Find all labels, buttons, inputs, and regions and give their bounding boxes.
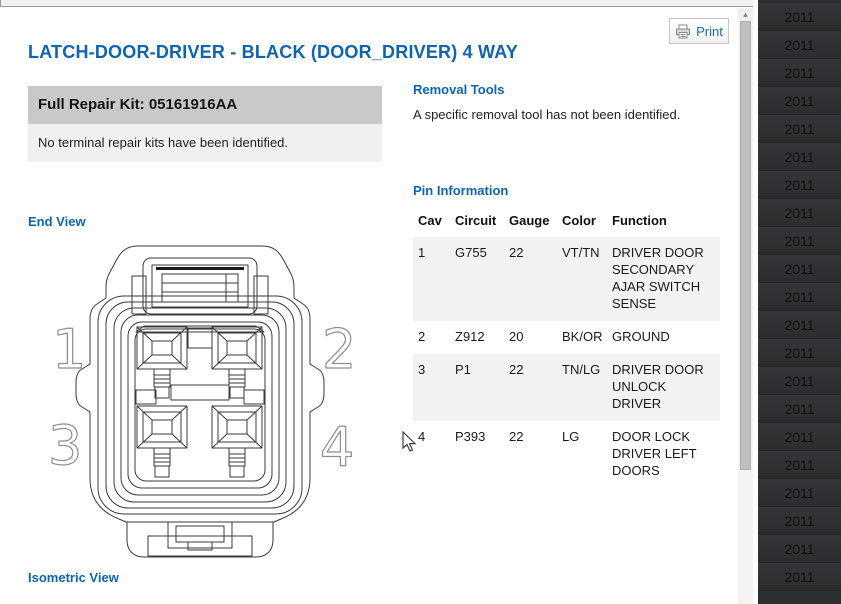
pin-table-header-row: Cav Circuit Gauge Color Function bbox=[413, 207, 720, 237]
cavity-label-3: 3 bbox=[48, 414, 82, 477]
cell-cav: 2 bbox=[413, 321, 450, 354]
table-row: 3 P1 22 TN/LG DRIVER DOOR UNLOCK DRIVER bbox=[413, 354, 720, 421]
scrollbar-thumb[interactable] bbox=[740, 21, 751, 470]
year-item[interactable]: 2011 bbox=[758, 59, 841, 87]
cell-color: TN/LG bbox=[557, 354, 607, 421]
removal-tools-note: A specific removal tool has not been ide… bbox=[413, 107, 680, 122]
cell-color: BK/OR bbox=[557, 321, 607, 354]
year-item[interactable]: 2011 bbox=[758, 563, 841, 591]
cell-gauge: 22 bbox=[504, 421, 557, 488]
year-item[interactable]: 2011 bbox=[758, 87, 841, 115]
year-item[interactable]: 2011 bbox=[758, 507, 841, 535]
cavity-label-4: 4 bbox=[320, 416, 354, 479]
vertical-scrollbar[interactable]: ▲ bbox=[738, 8, 753, 604]
pin-information-table: Cav Circuit Gauge Color Function 1 G755 … bbox=[413, 207, 720, 488]
col-header-cav: Cav bbox=[413, 207, 450, 237]
connector-end-view-diagram: 1 2 3 4 bbox=[40, 240, 372, 562]
cell-gauge: 22 bbox=[504, 354, 557, 421]
year-item[interactable]: 2011 bbox=[758, 199, 841, 227]
col-header-color: Color bbox=[557, 207, 607, 237]
cavity-label-1: 1 bbox=[52, 318, 86, 381]
cell-circuit: P393 bbox=[450, 421, 504, 488]
cell-cav: 1 bbox=[413, 237, 450, 321]
cavity-label-2: 2 bbox=[322, 318, 356, 381]
cell-function: GROUND bbox=[607, 321, 720, 354]
full-repair-kit-bar: Full Repair Kit: 05161916AA bbox=[28, 86, 382, 124]
year-item[interactable]: 2011 bbox=[758, 227, 841, 255]
year-item[interactable]: 2011 bbox=[758, 451, 841, 479]
col-header-circuit: Circuit bbox=[450, 207, 504, 237]
cell-color: VT/TN bbox=[557, 237, 607, 321]
table-row: 1 G755 22 VT/TN DRIVER DOOR SECONDARY AJ… bbox=[413, 237, 720, 321]
cell-gauge: 20 bbox=[504, 321, 557, 354]
year-item[interactable]: 2011 bbox=[758, 3, 841, 31]
year-item[interactable]: 2011 bbox=[758, 479, 841, 507]
year-item[interactable]: 2011 bbox=[758, 283, 841, 311]
cell-function: DRIVER DOOR UNLOCK DRIVER bbox=[607, 354, 720, 421]
year-item[interactable]: 2011 bbox=[758, 395, 841, 423]
year-item[interactable]: 2011 bbox=[758, 339, 841, 367]
cell-cav: 3 bbox=[413, 354, 450, 421]
removal-tools-heading: Removal Tools bbox=[413, 82, 505, 97]
cell-circuit: P1 bbox=[450, 354, 504, 421]
year-item[interactable]: 2011 bbox=[758, 143, 841, 171]
print-button[interactable]: Print bbox=[669, 18, 729, 44]
year-item[interactable]: 2011 bbox=[758, 31, 841, 59]
cell-circuit: G755 bbox=[450, 237, 504, 321]
table-row: 2 Z912 20 BK/OR GROUND bbox=[413, 321, 720, 354]
year-item[interactable]: 2011 bbox=[758, 171, 841, 199]
cell-circuit: Z912 bbox=[450, 321, 504, 354]
table-row: 4 P393 22 LG DOOR LOCK DRIVER LEFT DOORS bbox=[413, 421, 720, 488]
scrollbar-up-arrow-icon[interactable]: ▲ bbox=[738, 8, 753, 22]
printer-icon bbox=[675, 24, 691, 39]
cell-function: DRIVER DOOR SECONDARY AJAR SWITCH SENSE bbox=[607, 237, 720, 321]
end-view-heading: End View bbox=[28, 214, 86, 229]
year-sidebar: 2011 2011 2011 2011 2011 2011 2011 2011 … bbox=[758, 0, 841, 604]
pin-information-heading: Pin Information bbox=[413, 183, 508, 198]
year-item[interactable]: 2011 bbox=[758, 367, 841, 395]
year-item[interactable]: 2011 bbox=[758, 115, 841, 143]
year-item[interactable]: 2011 bbox=[758, 255, 841, 283]
connector-detail-page: { "header": { "print_label": "Print" }, … bbox=[0, 0, 841, 604]
isometric-view-heading: Isometric View bbox=[28, 570, 119, 585]
year-item[interactable]: 2011 bbox=[758, 311, 841, 339]
terminal-kit-note: No terminal repair kits have been identi… bbox=[28, 124, 382, 162]
col-header-function: Function bbox=[607, 207, 720, 237]
print-button-label: Print bbox=[696, 24, 723, 39]
cell-color: LG bbox=[557, 421, 607, 488]
content-panel: Print LATCH-DOOR-DRIVER - BLACK (DOOR_DR… bbox=[0, 8, 738, 604]
year-item[interactable]: 2011 bbox=[758, 423, 841, 451]
repair-kit-box: Full Repair Kit: 05161916AA No terminal … bbox=[28, 86, 382, 162]
cell-function: DOOR LOCK DRIVER LEFT DOORS bbox=[607, 421, 720, 488]
year-item[interactable]: 2011 bbox=[758, 535, 841, 563]
window-top-edge bbox=[0, 0, 755, 7]
cell-gauge: 22 bbox=[504, 237, 557, 321]
col-header-gauge: Gauge bbox=[504, 207, 557, 237]
page-title: LATCH-DOOR-DRIVER - BLACK (DOOR_DRIVER) … bbox=[28, 42, 718, 63]
cell-cav: 4 bbox=[413, 421, 450, 488]
